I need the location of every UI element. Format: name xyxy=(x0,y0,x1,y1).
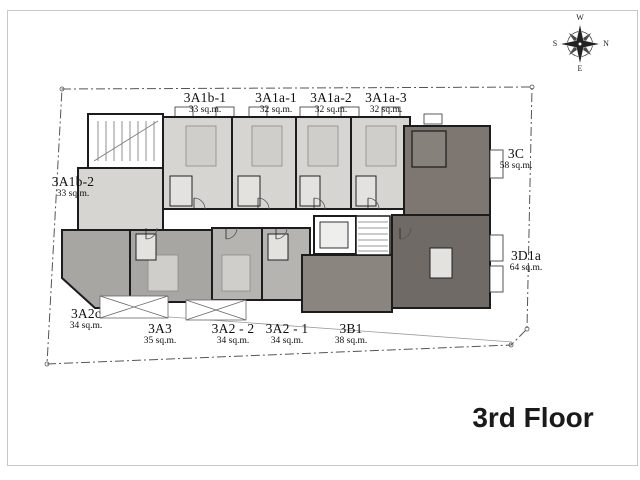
unit-label-3c: 3C 58 sq.m. xyxy=(474,147,558,171)
compass-label-left: S xyxy=(549,39,561,48)
unit-name: 3A3 xyxy=(118,322,202,336)
unit-3b1-shape xyxy=(302,255,392,312)
unit-area: 35 sq.m. xyxy=(118,337,202,347)
floor-plan-page: W N E S 3A1b-1 33 sq.m. 3A1a-1 32 sq.m. … xyxy=(0,0,640,480)
floor-title: 3rd Floor xyxy=(468,402,598,434)
unit-area: 32 sq.m. xyxy=(344,106,428,116)
unit-area: 38 sq.m. xyxy=(309,337,393,347)
unit-area: 34 sq.m. xyxy=(44,322,128,332)
unit-3c-bathroom xyxy=(412,131,446,167)
unit-name: 3A2c xyxy=(44,307,128,321)
elevator-cab xyxy=(320,222,348,248)
unit-name: 3D1a xyxy=(484,249,568,263)
balcony-mid xyxy=(186,300,246,320)
unit-label-3a3: 3A3 35 sq.m. xyxy=(118,322,202,346)
unit-label-3a1b-2: 3A1b-2 33 sq.m. xyxy=(31,175,115,199)
unit-label-3a2c: 3A2c 34 sq.m. xyxy=(44,307,128,331)
unit-area: 58 sq.m. xyxy=(474,162,558,172)
unit-name: 3C xyxy=(474,147,558,161)
unit-name: 3B1 xyxy=(309,322,393,336)
compass-label-right: N xyxy=(600,39,612,48)
unit-label-3a1a-3: 3A1a-3 32 sq.m. xyxy=(344,91,428,115)
compass-label-bottom: E xyxy=(574,64,586,73)
unit-label-3d1a: 3D1a 64 sq.m. xyxy=(484,249,568,273)
unit-area: 64 sq.m. xyxy=(484,264,568,274)
unit-name: 3A1a-3 xyxy=(344,91,428,105)
unit-label-3b1: 3B1 38 sq.m. xyxy=(309,322,393,346)
unit-area: 33 sq.m. xyxy=(31,190,115,200)
unit-name: 3A1b-2 xyxy=(31,175,115,189)
compass-rose xyxy=(560,24,600,64)
compass-label-top: W xyxy=(574,13,586,22)
